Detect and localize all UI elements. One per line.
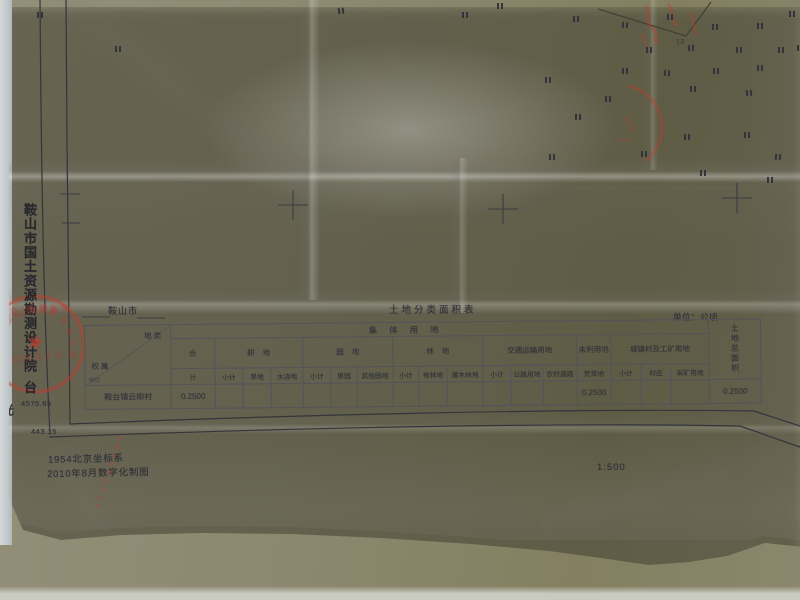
vegetation-mark-icon	[549, 154, 555, 160]
vegetation-mark-icon	[575, 114, 581, 120]
vegetation-mark-icon	[736, 47, 742, 53]
vegetation-mark-icon	[757, 23, 763, 29]
vegetation-mark-icon	[746, 90, 752, 96]
vegetation-mark-icon	[688, 45, 694, 52]
vegetation-mark-icon	[646, 47, 652, 53]
vegetation-mark-icon	[462, 12, 468, 18]
vegetation-mark-icon	[115, 46, 121, 52]
vegetation-mark-icon	[684, 134, 690, 140]
vegetation-mark-icon	[37, 12, 43, 18]
vegetation-mark-icon	[690, 86, 696, 92]
vegetation-mark-icon	[667, 14, 673, 20]
vegetation-mark-icon	[641, 151, 647, 157]
vegetation-mark-icon	[545, 77, 551, 83]
vegetation-mark-icon	[757, 65, 763, 71]
vegetation-mark-icon	[622, 22, 628, 28]
vegetation-mark-icon	[778, 47, 784, 53]
vegetation-mark-icon	[713, 68, 719, 74]
vegetation-mark-icon	[622, 68, 628, 74]
vegetation-mark-icon	[744, 132, 750, 138]
vegetation-mark-icon	[573, 16, 579, 22]
vegetation-mark-icon	[767, 177, 773, 183]
vegetation-mark-icon	[605, 96, 611, 102]
document-photo: 鞍山市国土资源勘测设计院 台 光 4575.65 443.15 鞍山市 土地分类…	[0, 0, 800, 600]
vegetation-mark-icon	[700, 170, 706, 176]
vegetation-mark-icon	[789, 11, 795, 17]
vegetation-mark-icon	[497, 3, 503, 9]
paper-sheet: 鞍山市国土资源勘测设计院 台 光 4575.65 443.15 鞍山市 土地分类…	[0, 0, 800, 600]
vegetation-mark-icon	[664, 70, 670, 77]
vegetation-marks-layer	[0, 0, 800, 600]
vegetation-mark-icon	[775, 154, 781, 161]
vegetation-mark-icon	[338, 8, 344, 15]
vegetation-mark-icon	[712, 24, 718, 30]
desk-edge-strip	[0, 586, 800, 600]
